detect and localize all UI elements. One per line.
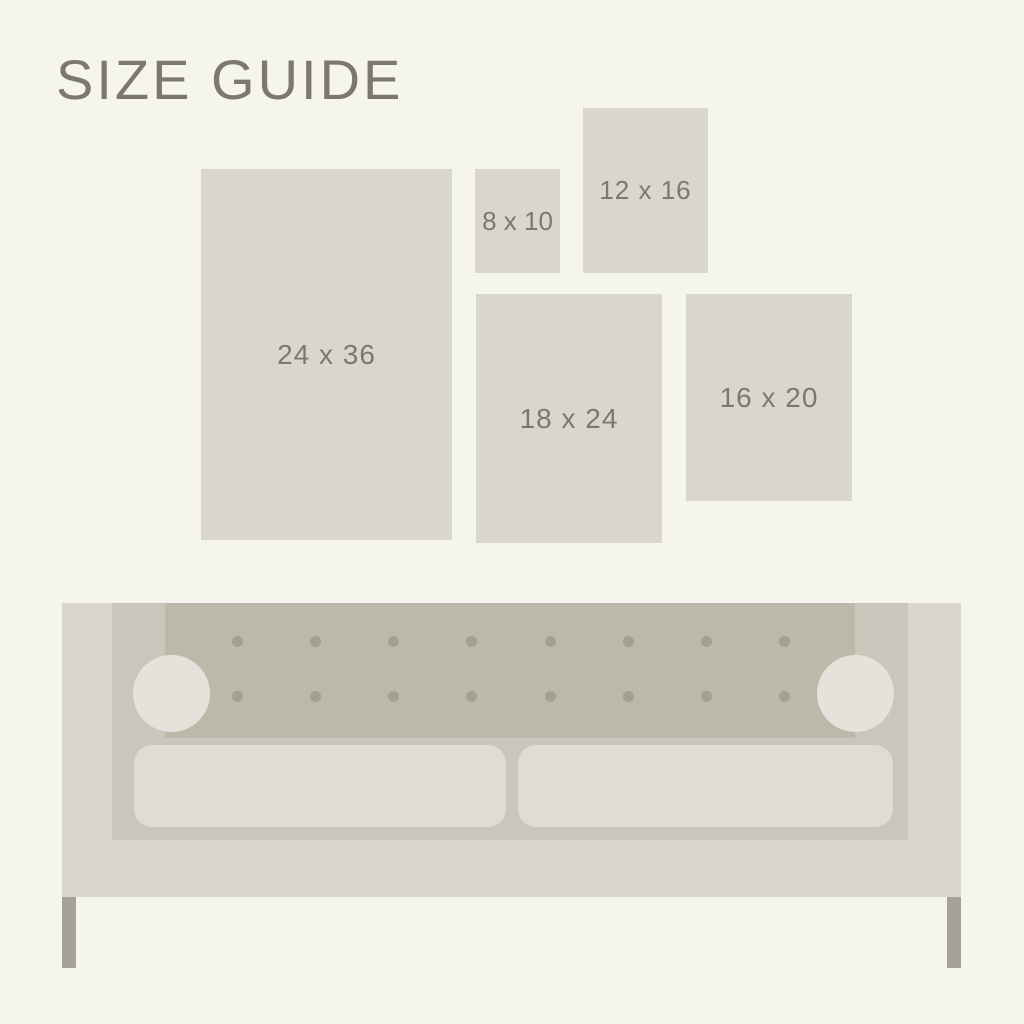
tufting-button [388,636,399,647]
tufting-button [779,691,790,702]
tufting-button [779,636,790,647]
sofa-seat-cushion-right [518,745,893,827]
size-label-24x36: 24 x 36 [277,339,376,371]
size-frame-12x16: 12 x 16 [583,108,708,273]
tufting-button [388,691,399,702]
tufting-button [545,636,556,647]
tufting-button [466,691,477,702]
size-frame-16x20: 16 x 20 [686,294,852,501]
sofa-leg-right [947,897,961,968]
tufting-button [701,691,712,702]
sofa-leg-left [62,897,76,968]
sofa-bolster-pillow-left [133,655,210,732]
sofa-illustration [62,603,961,968]
size-guide-infographic: SIZE GUIDE 24 x 36 8 x 10 12 x 16 18 x 2… [0,0,1024,1024]
sofa-seat-cushion-left [134,745,506,827]
size-label-8x10: 8 x 10 [482,206,553,237]
tufting-button [623,636,634,647]
tufting-button [310,636,321,647]
size-label-16x20: 16 x 20 [720,382,819,414]
tufting-button-row-top [232,636,790,647]
tufting-button [232,636,243,647]
tufting-button [623,691,634,702]
tufting-button [232,691,243,702]
tufting-button [310,691,321,702]
size-frame-24x36: 24 x 36 [201,169,452,540]
sofa-back-cushion [165,603,855,738]
tufting-button-row-bottom [232,691,790,702]
tufting-button [545,691,556,702]
size-frame-18x24: 18 x 24 [476,294,662,543]
tufting-button [466,636,477,647]
tufting-button [701,636,712,647]
page-title: SIZE GUIDE [56,52,403,108]
size-label-18x24: 18 x 24 [520,403,619,435]
size-label-12x16: 12 x 16 [599,175,691,206]
size-frame-8x10: 8 x 10 [475,169,560,273]
sofa-bolster-pillow-right [817,655,894,732]
